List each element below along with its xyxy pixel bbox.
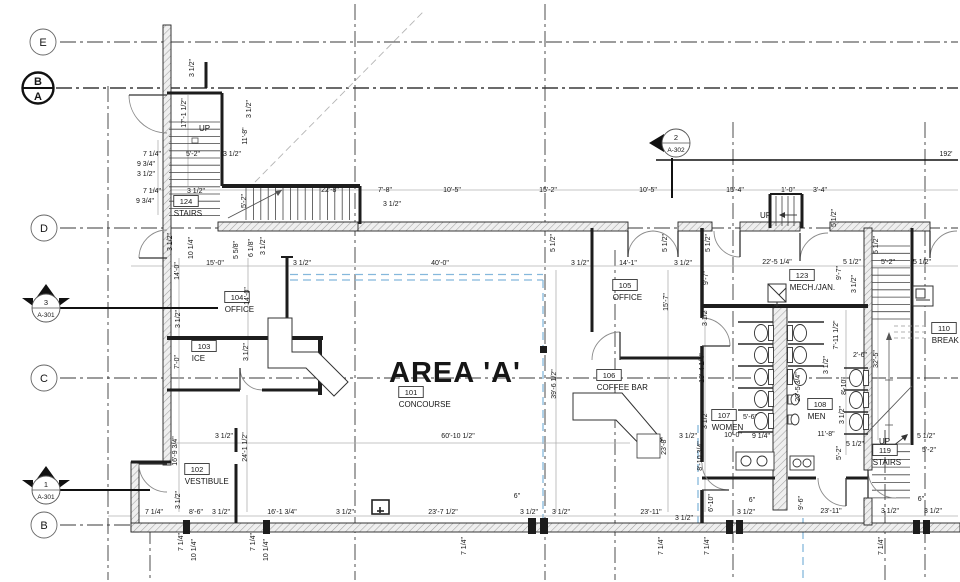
room-name: BREAK xyxy=(932,336,960,345)
dimension-label: 7 1/4" xyxy=(143,151,162,158)
dimension-label: 5 1/2" xyxy=(846,441,865,448)
dimension-label: 7 1/4" xyxy=(658,536,665,555)
dimension-label: 7'-8" xyxy=(378,187,392,194)
dimension-label: 3 1/2" xyxy=(552,509,571,516)
dimension-label: 9 3/4" xyxy=(137,161,156,168)
dimension-label: 7'-0" xyxy=(174,355,181,369)
dimension-label: 16'-9 3/4" xyxy=(172,436,179,466)
dimension-label: 3 1/2" xyxy=(823,355,830,374)
dimension-label: 5 1/2" xyxy=(843,259,862,266)
dimension-label: 11'-8" xyxy=(817,431,835,438)
dimension-label: 10'-5" xyxy=(443,187,461,194)
room-name: MEN xyxy=(808,412,826,421)
dimension-label: 40'-0" xyxy=(431,260,449,267)
dimension-label: 10'-5" xyxy=(639,187,657,194)
dimension-label: 7'-11 1/2" xyxy=(833,320,840,350)
dimension-label: 8'-10 3/4" xyxy=(697,441,704,471)
floor-plan-canvas: EBADCB 3A-3011A-3012A-302 124STAIRS104OF… xyxy=(0,0,960,582)
dimension-label: 5 1/2" xyxy=(550,233,557,252)
dimension-label: 14'-1" xyxy=(619,260,637,267)
dimension-label: 24'-1 1/2" xyxy=(242,432,249,462)
dimension-label: 3 1/2" xyxy=(137,171,156,178)
section-flag-lines xyxy=(60,158,672,490)
mop-sink-icon xyxy=(768,284,786,307)
dimension-label: 9 3/4" xyxy=(136,198,155,205)
dimension-label: 7 1/4" xyxy=(704,536,711,555)
dimension-label: 5 1/2" xyxy=(831,208,838,227)
dimension-label: 3 1/2" xyxy=(260,236,267,255)
dimension-label: 3 1/2" xyxy=(851,274,858,293)
room-number: 110 xyxy=(938,324,950,333)
dimension-label: 9 1/4" xyxy=(752,433,771,440)
up-label: UP xyxy=(760,211,771,220)
dimension-label: 3 1/2" xyxy=(175,309,182,328)
floor-box-fixture xyxy=(372,500,389,514)
section-number: 3 xyxy=(44,298,48,307)
grid-letter: D xyxy=(40,223,48,235)
dimension-label: 3'-4" xyxy=(813,187,827,194)
dimension-label: 32'-5" xyxy=(873,350,880,368)
dimension-label: 3 1/2" xyxy=(571,260,590,267)
dimension-label: 7 1/4" xyxy=(143,188,162,195)
dimension-label: 3 1/2" xyxy=(167,232,174,251)
dimension-label: 3 1/2" xyxy=(187,188,206,195)
room-name: MECH./JAN. xyxy=(790,283,835,292)
grid-letter: A xyxy=(34,91,42,103)
room-number: 124 xyxy=(180,197,193,206)
dimension-label: 3 1/2" xyxy=(246,99,253,118)
dimension-label: 5 1/2" xyxy=(662,233,669,252)
room-name: VESTIBULE xyxy=(185,477,229,486)
dimension-label: 3 1/2" xyxy=(924,508,943,515)
dimension-label: 3 1/2" xyxy=(881,508,900,515)
dimension-label: 39'-6 1/2" xyxy=(551,369,558,399)
section-arrow-wing xyxy=(22,480,33,488)
ice-maker-icon xyxy=(913,286,933,306)
dimension-label: 3 1/2" xyxy=(243,342,250,361)
section-number: 2 xyxy=(674,133,678,142)
room-name: WOMEN xyxy=(712,423,744,432)
room-number: 105 xyxy=(619,281,632,290)
dimension-label: 5'-2" xyxy=(922,447,936,454)
room-number: 107 xyxy=(718,411,731,420)
dimension-label: 5'-6" xyxy=(743,414,757,421)
dimension-label: 15'-4" xyxy=(726,187,744,194)
dimension-label: 15'-2" xyxy=(539,187,557,194)
section-sheet: A-301 xyxy=(37,494,55,501)
section-number: 1 xyxy=(44,480,48,489)
room-number: 106 xyxy=(603,371,616,380)
dimension-label: 8'-10" xyxy=(841,377,848,395)
room-number: 108 xyxy=(814,400,827,409)
dimension-label: 6" xyxy=(514,493,521,500)
column-marker xyxy=(540,346,547,353)
section-arrow-wing xyxy=(22,298,33,306)
dimension-label: 3 1/2" xyxy=(702,307,709,326)
dimension-label: 17'-1 1/2" xyxy=(181,98,188,128)
dimension-label: 3 1/2" xyxy=(336,509,355,516)
dimension-label: 9'-6" xyxy=(798,496,805,510)
dimension-label: 3 1/2" xyxy=(674,260,693,267)
dimension-label: 14'-0" xyxy=(174,262,181,280)
grid-letter: B xyxy=(40,520,47,532)
section-sheet: A-301 xyxy=(37,312,55,319)
dimension-label: 192' xyxy=(939,151,952,158)
dimension-label: 6 1/8" xyxy=(248,238,255,257)
dimension-label: 7 1/4" xyxy=(461,536,468,555)
dimension-label: 3 1/2" xyxy=(212,509,231,516)
up-label: UP xyxy=(879,437,890,446)
room-name: OFFICE xyxy=(613,293,642,302)
dimension-label: 3 1/2" xyxy=(675,515,694,522)
dimension-label: 3 1/2" xyxy=(223,151,242,158)
dimension-label: 5'-2" xyxy=(241,194,248,208)
grid-letter: E xyxy=(39,37,46,49)
section-arrow-wing xyxy=(59,298,70,306)
dimension-label: 3 1/2" xyxy=(383,201,402,208)
dimension-label: 7 1/4" xyxy=(178,532,185,551)
dimension-label: 3 1/2" xyxy=(293,260,312,267)
up-label: UP xyxy=(199,124,210,133)
dimension-label: 20'-5 3/4" xyxy=(795,372,802,402)
dimension-label: 8'-6" xyxy=(189,509,203,516)
room-number: 123 xyxy=(796,271,809,280)
room-number: 102 xyxy=(191,465,204,474)
dimension-label: 16'-1 3/4" xyxy=(267,509,297,516)
dimension-label: 6'-10" xyxy=(708,494,715,512)
coffee-bar-counter xyxy=(573,393,662,458)
dimension-label: 7 1/4" xyxy=(250,532,257,551)
dimension-label: 3 1/2" xyxy=(520,509,539,516)
dimension-label: 5 1/2" xyxy=(917,433,936,440)
room-name: CONCOURSE xyxy=(399,400,451,409)
dimension-label: 3 1/2" xyxy=(737,509,756,516)
break-room-shelf-dashes xyxy=(894,326,924,338)
room-name: STAIRS xyxy=(174,209,202,218)
dimension-label: 22'-8" xyxy=(321,187,339,194)
dimension-label: 9'-7" xyxy=(836,266,843,280)
room-number: 101 xyxy=(405,388,418,397)
dimension-label: 7 1/4" xyxy=(145,509,164,516)
dimension-label: 23'-11" xyxy=(640,509,662,516)
dimension-label: 5 1/2" xyxy=(705,233,712,252)
dimension-label: 10 1/4" xyxy=(191,539,198,561)
dimension-label: 10 1/4" xyxy=(263,539,270,561)
dimension-label: 7 1/4" xyxy=(878,536,885,555)
room-name: OFFICE xyxy=(225,305,254,314)
dimension-label: 2'-6" xyxy=(853,352,867,359)
dimension-label: 3 1/2" xyxy=(839,405,846,424)
room-name: ICE xyxy=(192,354,205,363)
dimension-label: 23'-7 1/2" xyxy=(428,509,458,516)
dimension-label: 5 1/2" xyxy=(873,235,880,254)
dimension-label: 9'-7" xyxy=(703,271,710,285)
dimension-label: 3 1/2" xyxy=(189,58,196,77)
room-name: COFFEE BAR xyxy=(597,383,648,392)
dimension-label: 15'-0" xyxy=(206,260,224,267)
dimension-labels: 7 1/4"9 3/4"3 1/2"7 1/4"9 3/4"5'-2"3 1/2… xyxy=(136,58,953,561)
dimension-label: 5'-2" xyxy=(836,446,843,460)
dimension-label: 5 1/2" xyxy=(913,259,932,266)
dimension-label: 5 5/8" xyxy=(233,240,240,259)
dimension-label: 3 1/2" xyxy=(679,433,698,440)
area-title: AREA 'A' xyxy=(389,357,521,389)
dimension-label: 3 1/2" xyxy=(702,410,709,429)
room-number: 119 xyxy=(879,446,891,455)
reception-desk xyxy=(268,318,348,396)
grid-letter: B xyxy=(34,76,42,88)
dimension-label: 15'-7" xyxy=(663,293,670,311)
stair-119-direction xyxy=(866,332,912,440)
dimension-label: 6" xyxy=(749,497,756,504)
section-arrow-wing xyxy=(59,480,70,488)
dimension-label: 11'-8" xyxy=(242,127,249,145)
dimension-label: 3 1/2" xyxy=(215,433,234,440)
dimension-label: 14'-0" xyxy=(244,287,251,305)
dimension-label: 3 1/2" xyxy=(175,490,182,509)
dimension-label: 22'-5 1/4" xyxy=(762,259,792,266)
floor-plan-page: EBADCB 3A-3011A-3012A-302 124STAIRS104OF… xyxy=(0,0,960,582)
dimension-label: 5'-2" xyxy=(881,259,895,266)
dimension-label: 5'-2" xyxy=(186,151,200,158)
room-number: 104 xyxy=(231,293,244,302)
grid-bubbles: EBADCB xyxy=(23,29,58,538)
dimension-label: 60'-10 1/2" xyxy=(441,433,475,440)
dashed-diagonal-line xyxy=(255,10,425,182)
dimension-label: 23'-8" xyxy=(661,437,668,455)
dimension-label: 6" xyxy=(918,496,925,503)
dimension-label: 13'-4 1/4" xyxy=(699,353,706,383)
room-number: 103 xyxy=(198,342,211,351)
dimension-label: 10'-0" xyxy=(724,432,742,439)
grid-letter: C xyxy=(40,373,48,385)
dimension-label: 23'-11" xyxy=(820,508,842,515)
section-sheet: A-302 xyxy=(667,147,685,154)
dimension-label: 1'-0" xyxy=(781,187,795,194)
dimension-label: 10 1/4" xyxy=(188,237,195,259)
room-name: STAIRS xyxy=(873,458,901,467)
